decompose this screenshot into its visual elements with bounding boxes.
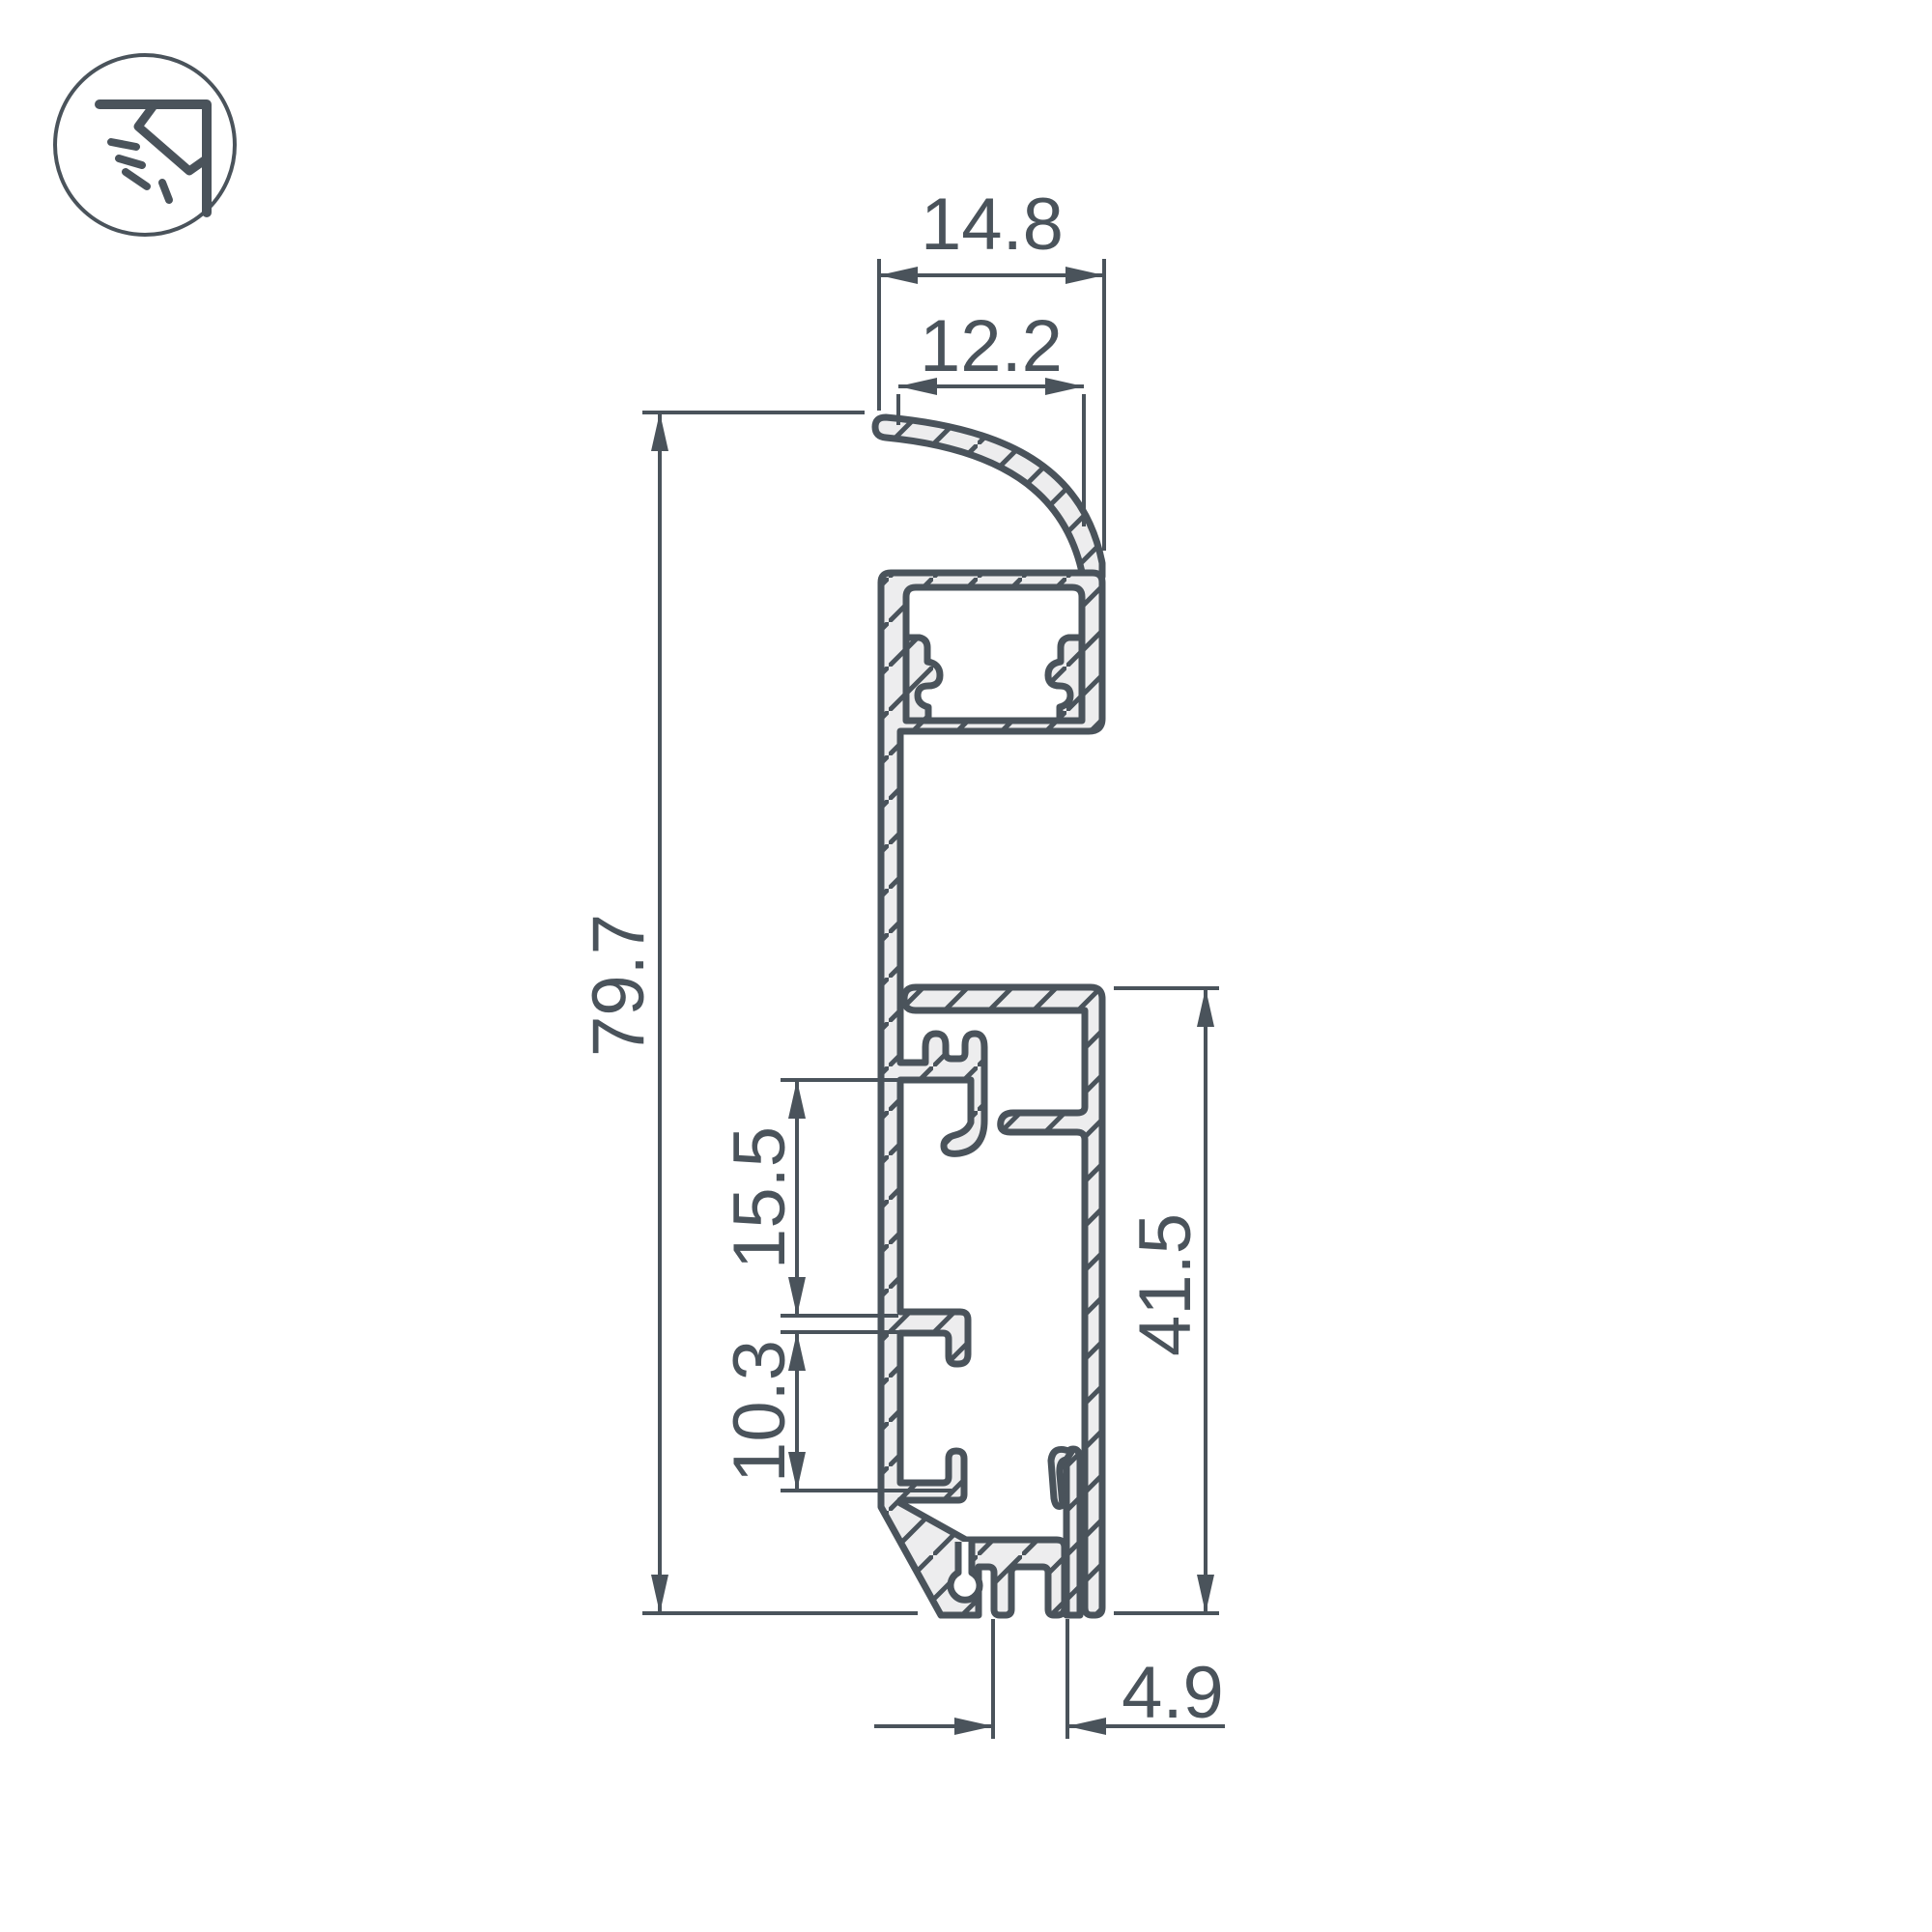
dimension-label: 12.2 — [920, 305, 1063, 387]
technical-drawing-canvas: 14.8 12.2 79.7 15.5 10.3 41.5 4.9 — [0, 0, 1932, 1932]
dimension-label: 10.3 — [719, 1340, 801, 1483]
dimension-label: 79.7 — [578, 914, 660, 1057]
cover-clip-plate — [1066, 1449, 1080, 1615]
foot-screw-notch — [951, 1542, 980, 1600]
dimension-label: 15.5 — [719, 1126, 801, 1269]
dimension-label: 14.8 — [921, 184, 1064, 266]
dimension-visor-width: 12.2 — [898, 305, 1084, 395]
drawing-background — [0, 0, 1932, 1932]
dimension-tab-spacing: 10.3 — [719, 1332, 806, 1491]
dimension-label: 4.9 — [1122, 1652, 1224, 1734]
led-channel-cavity — [906, 587, 1082, 721]
dimension-label: 41.5 — [1124, 1213, 1207, 1356]
